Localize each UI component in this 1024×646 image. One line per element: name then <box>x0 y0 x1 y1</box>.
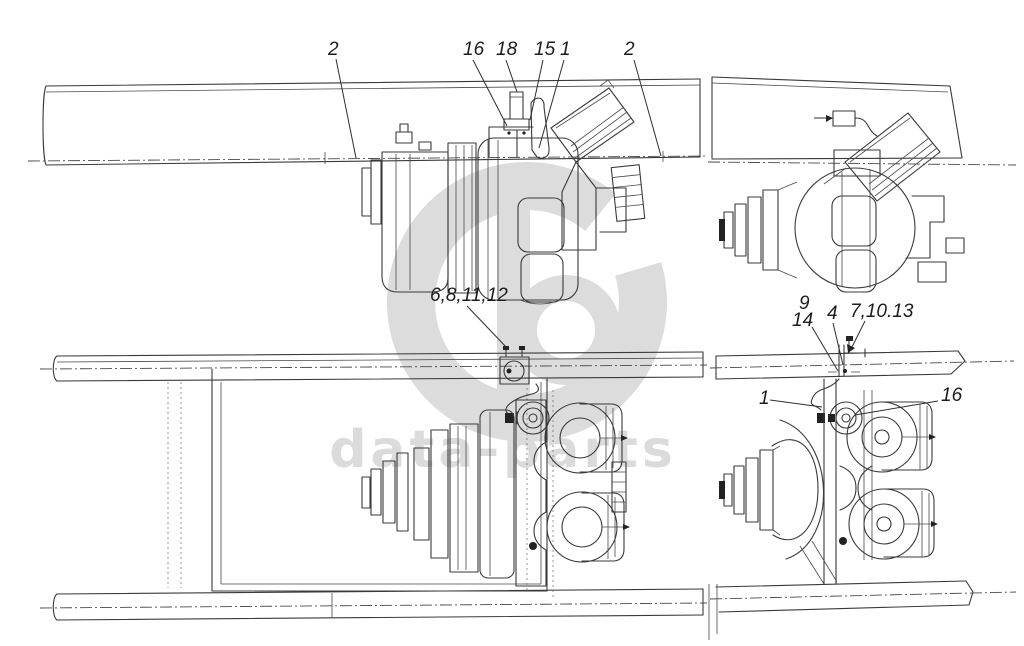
callout-1-bottom: 1 <box>759 388 770 409</box>
rail-centerline <box>710 361 1014 368</box>
axle-assembly-plan-front <box>719 379 938 584</box>
callout-15: 15 <box>534 39 556 60</box>
frame-rail-plan-right-top <box>710 351 1014 379</box>
input-flange-cone <box>719 182 797 278</box>
valve-part18 <box>504 92 529 157</box>
view-side-front-axle <box>708 77 1016 292</box>
leader-2-left <box>336 59 356 158</box>
callout-16-top: 16 <box>463 39 485 60</box>
hose-plan-front <box>811 379 839 410</box>
axle-assembly-front-side <box>719 111 964 292</box>
leader-9-14 <box>812 327 838 371</box>
callout-4: 4 <box>827 303 838 324</box>
hose-part1-side <box>531 98 549 158</box>
filler-cap <box>396 132 412 143</box>
parts-diagram-canvas: data-parts <box>0 0 1024 646</box>
rail-centerline <box>710 592 1016 599</box>
leader-16-top <box>473 60 507 126</box>
leader-arrowhead <box>847 344 855 353</box>
rail-bracket <box>828 336 865 376</box>
leader-7-10-13 <box>851 321 865 349</box>
crossmember-lines <box>168 382 181 588</box>
callout-2-left: 2 <box>327 39 339 60</box>
leader-4 <box>833 323 843 365</box>
hose-front-side <box>855 118 877 136</box>
chamber-bracket <box>489 127 533 157</box>
leader-2-right <box>634 60 661 156</box>
callout-7-10-13: 7,10.13 <box>850 301 914 322</box>
callout-1-top: 1 <box>560 39 571 60</box>
leader-16-bottom <box>855 401 938 415</box>
frame-rail-side-left <box>28 79 708 165</box>
callout-6-8-11-12: 6,8,11,12 <box>430 285 508 306</box>
leader-1-top <box>539 60 564 148</box>
frame-rail-plan-right-bottom <box>709 581 1016 640</box>
brake-chamber-plan-3 <box>847 402 936 472</box>
callout-18: 18 <box>496 39 518 60</box>
callout-2-right: 2 <box>623 39 635 60</box>
brake-chamber-plan-2 <box>547 492 630 562</box>
callout-14: 14 <box>792 310 813 331</box>
hatched-flange <box>611 165 644 222</box>
diff-housing-dome <box>772 440 818 540</box>
rail-centerline <box>708 162 1016 165</box>
frame-rail-side-right <box>708 77 1016 165</box>
rail-centerline <box>40 603 707 608</box>
view-plan-front-axle <box>709 336 1016 640</box>
callout-16-bottom: 16 <box>941 385 963 406</box>
diagram-svg: data-parts <box>0 0 1024 646</box>
hose-fitting <box>833 111 855 126</box>
frame-rail-plan-bottom <box>40 589 707 620</box>
brake-chamber-side <box>551 80 634 162</box>
leader-1-bottom <box>770 400 822 407</box>
brake-chamber-plan-4 <box>849 489 938 559</box>
leader-15 <box>530 60 543 120</box>
